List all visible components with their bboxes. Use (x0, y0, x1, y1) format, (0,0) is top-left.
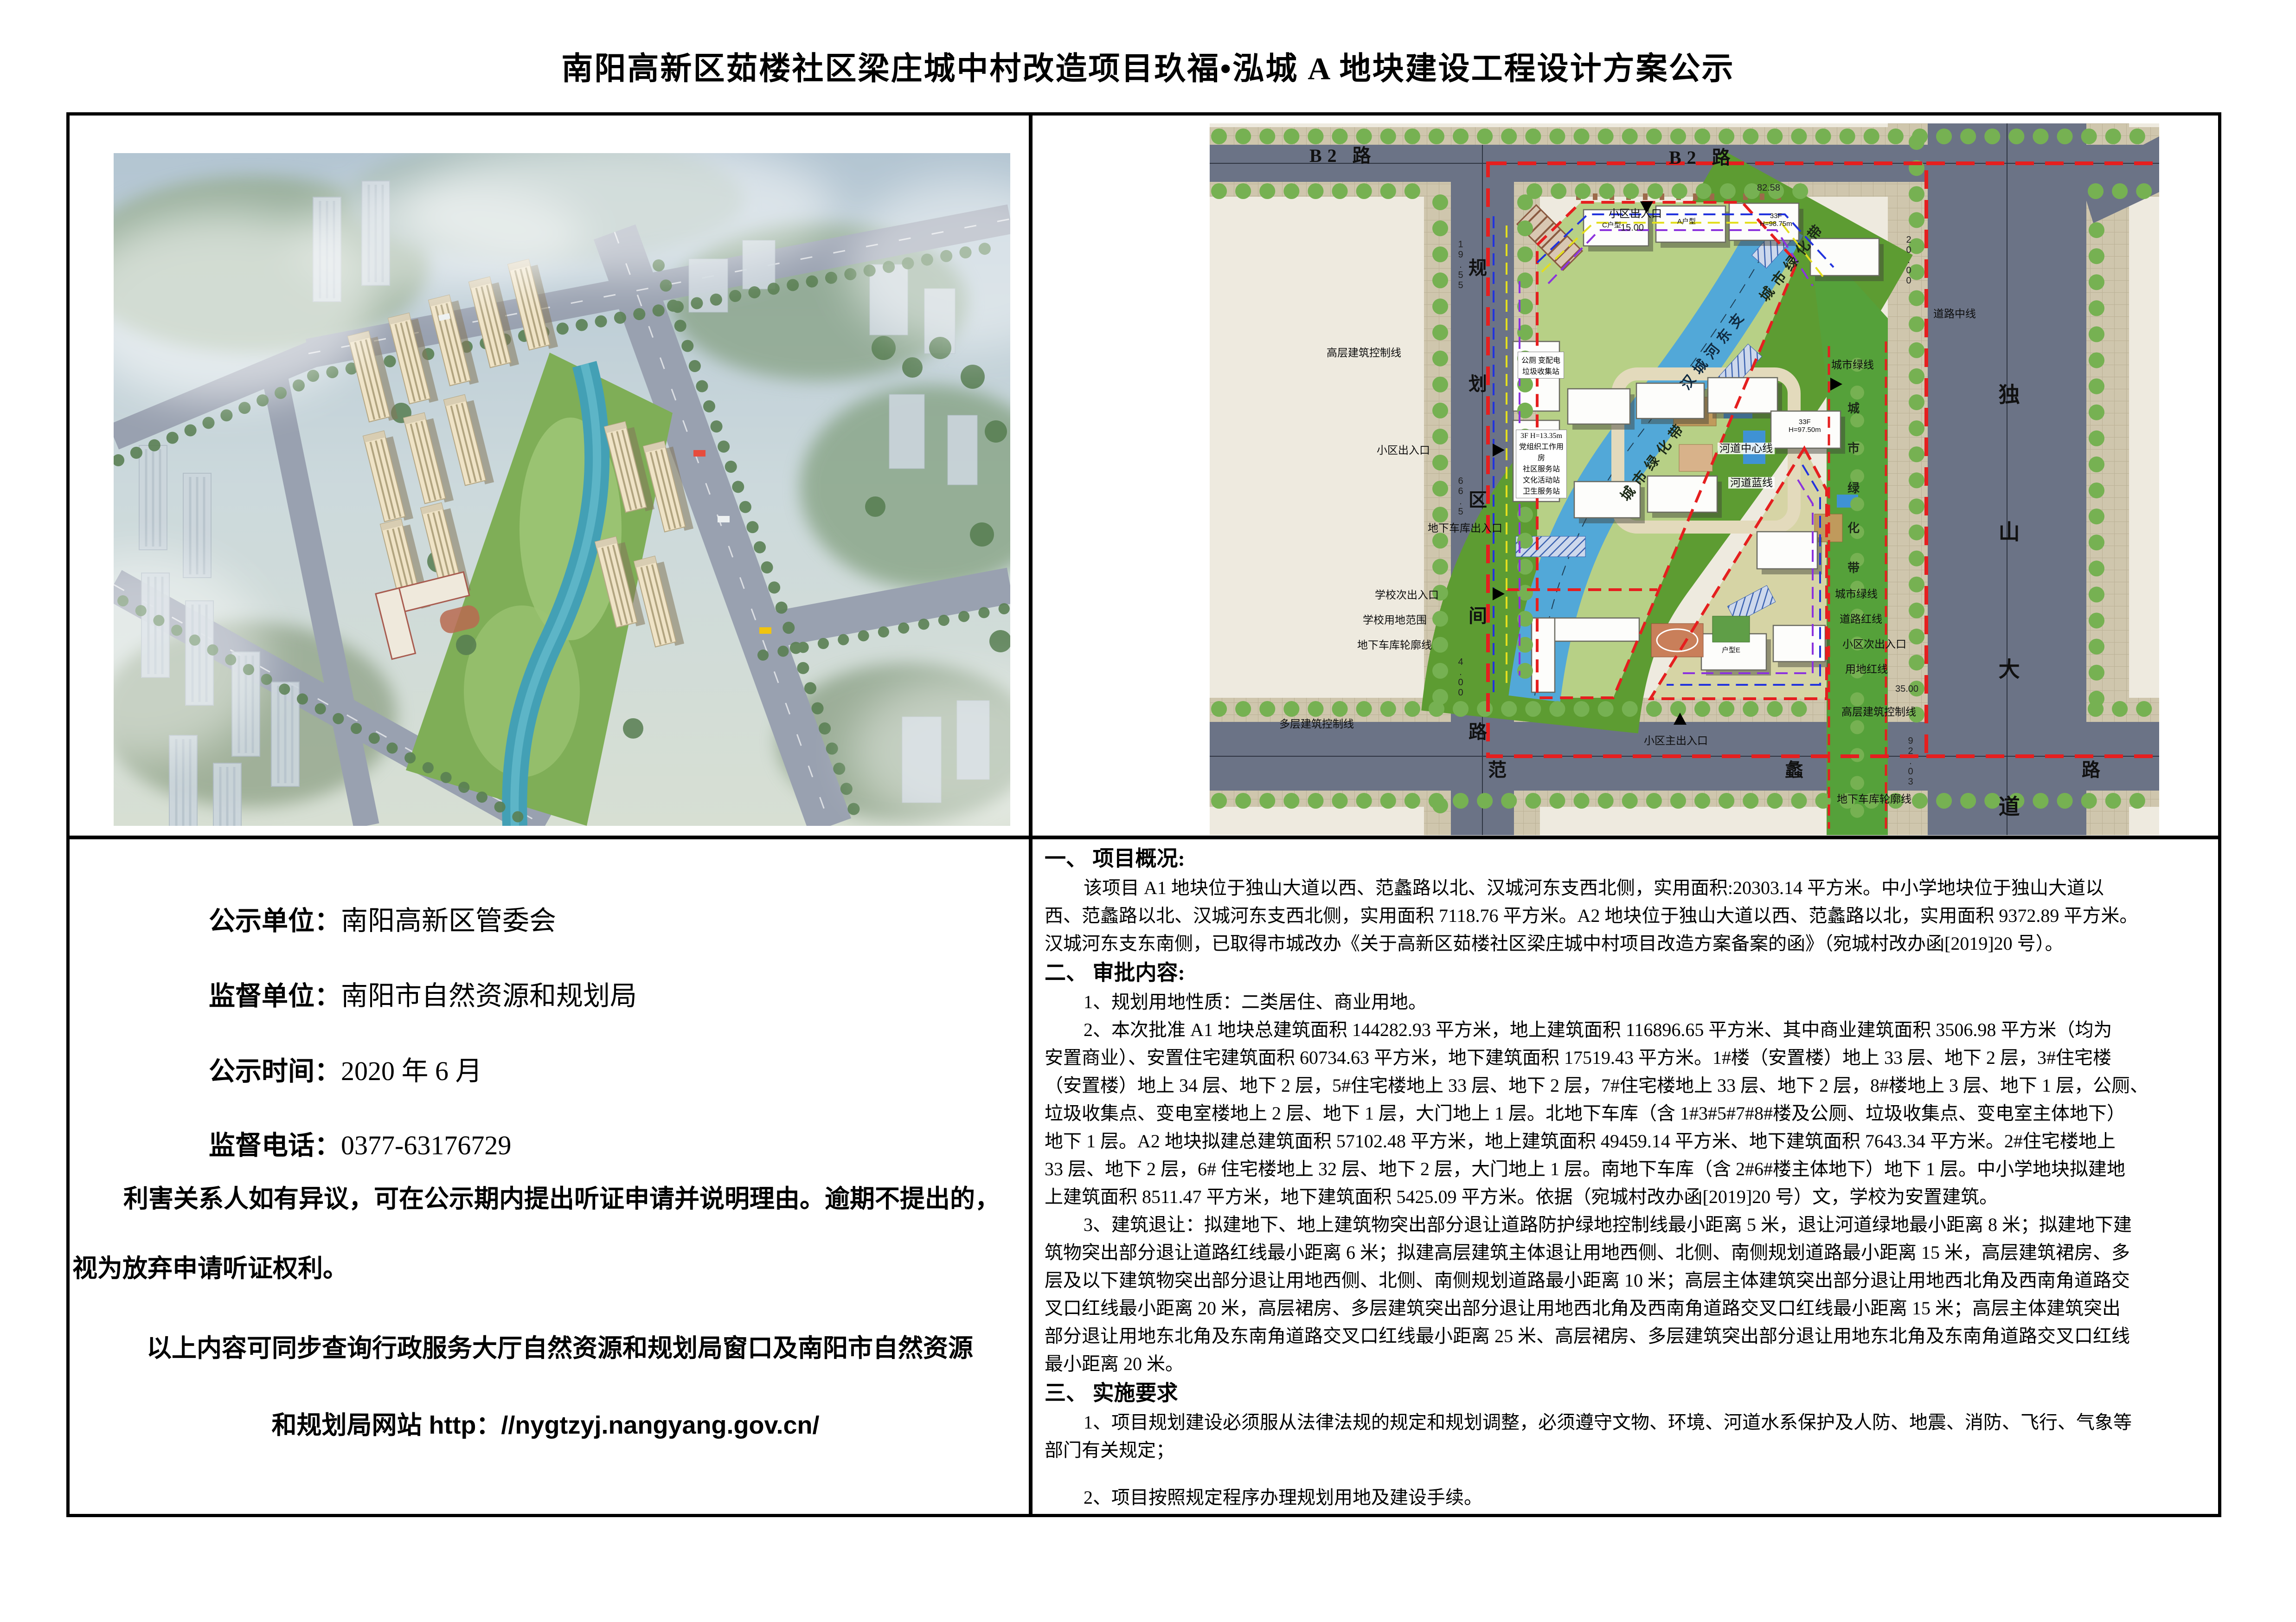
label-city-green-line-1: 城市绿线 (1831, 359, 1874, 371)
label-unit-e: 户型E (1722, 647, 1740, 655)
label-highrise-control-line-east: 高层建筑控制线 (1841, 706, 1916, 718)
text-line: 垃圾收集点、变电室楼地上 2 层、地下 1 层，大门地上 1 层。北地下车库（含… (1045, 1100, 2214, 1127)
site-plan: B2 路 B2 路 规划区间路 独山大道 范蠡路 城市绿化带 汉城河东支 城市绿… (1210, 123, 2159, 835)
label-highrise-control-line-west: 高层建筑控制线 (1327, 347, 1401, 359)
text-line: 筑物突出部分退让道路红线最小距离 6 米；拟建高层建筑主体退让用地西侧、北侧、南… (1045, 1239, 2214, 1267)
notice-phone-value: 0377-63176729 (341, 1130, 511, 1160)
label-river-centerline: 河道中心线 (1718, 443, 1775, 454)
notice-unit-label: 公示单位： (209, 906, 341, 936)
label-unit-a: A户型 (1677, 218, 1696, 226)
table-vertical-divider (1029, 112, 1033, 1517)
label-entry-main: 小区主出入口 (1644, 735, 1708, 747)
text-line: 该项目 A1 地块位于独山大道以西、范蠡路以北、汉城河东支西北侧，实用面积:20… (1045, 874, 2214, 902)
dim-8258: 82.58 (1757, 183, 1780, 193)
notice-query-paragraph: 以上内容可同步查询行政服务大厅自然资源和规划局窗口及南阳市自然资源 (72, 1313, 1019, 1383)
section-heading-1: 一、 项目概况: (1045, 843, 2214, 874)
label-33f-9875: 33F H=98.75m (1760, 212, 1792, 228)
page-title: 南阳高新区茹楼社区梁庄城中村改造项目玖福•泓城 A 地块建设工程设计方案公示 (0, 43, 2296, 89)
label-garage-outline-east: 地下车库轮廓线 (1837, 793, 1911, 805)
notice-row-unit: 公示单位：南阳高新区管委会 (209, 899, 556, 938)
notice-page: 南阳高新区茹楼社区梁庄城中村改造项目玖福•泓城 A 地块建设工程设计方案公示 (0, 0, 2296, 1622)
notice-time-value: 2020 年 6 月 (341, 1056, 482, 1086)
label-unit-c: C户型 (1602, 222, 1621, 230)
notice-supervisor-value: 南阳市自然资源和规划局 (341, 981, 637, 1011)
road-label-fanli-road: 范蠡路 (1488, 760, 2296, 780)
label-utilities-box: 公厕 变配电 垃圾收集站 (1518, 352, 1564, 379)
label-site-red-line: 用地红线 (1845, 663, 1888, 675)
notice-cell: 公示单位：南阳高新区管委会 监督单位：南阳市自然资源和规划局 公示时间：2020… (70, 839, 1029, 1514)
notice-objection-paragraph: 利害关系人如有异议，可在公示期内提出听证申请并说明理由。逾期不提出的，视为放弃申… (72, 1164, 1019, 1303)
text-line: 部门有关规定； (1045, 1436, 2214, 1464)
label-garage-entry: 地下车库出入口 (1428, 522, 1502, 534)
section-heading-2: 二、 审批内容: (1045, 958, 2214, 988)
text-line: 安置商业）、安置住宅建筑面积 60734.63 平方米，地下建筑面积 17519… (1045, 1044, 2214, 1072)
dim-1955: 19.55 (1456, 239, 1466, 290)
notice-phone-label: 监督电话： (209, 1131, 341, 1160)
aerial-rendering (114, 153, 1010, 826)
text-line: 33 层、地下 2 层，6# 住宅楼地上 32 层、地下 2 层，大门地上 1 … (1045, 1155, 2214, 1183)
overview-cell: 一、 项目概况: 该项目 A1 地块位于独山大道以西、范蠡路以北、汉城河东支西北… (1045, 843, 2214, 1512)
text-line: 汉城河东支东南侧，已取得市城改办《关于高新区茹楼社区梁庄城中村项目改造方案备案的… (1045, 930, 2214, 958)
road-label-dushan-avenue: 独山大道 (1995, 383, 2019, 933)
dim-400: 4.00 (1456, 657, 1466, 698)
dim-665: 66.5 (1456, 476, 1466, 517)
label-river-blue-line: 河道蓝线 (1728, 477, 1775, 489)
text-line: 叉口红线最小距离 20 米，高层裙房、多层建筑突出部分退让用地西北角及西南角道路… (1045, 1294, 2214, 1322)
text-line: 地下 1 层。A2 地块拟建总建筑面积 57102.48 平方米，地上建筑面积 … (1045, 1127, 2214, 1155)
dim-3500: 35.00 (1895, 684, 1918, 694)
dim-1500: 15.00 (1621, 223, 1644, 233)
text-line: 2、本次批准 A1 地块总建筑面积 144282.93 平方米，地上建筑面积 1… (1045, 1016, 2214, 1044)
text-line: 层及以下建筑物突出部分退让用地西侧、北侧、南侧规划道路最小距离 10 米；高层主… (1045, 1267, 2214, 1294)
text-line: 1、项目规划建设必须服从法律法规的规定和规划调整，必须遵守文物、环境、河道水系保… (1045, 1409, 2214, 1436)
notice-row-time: 公示时间：2020 年 6 月 (209, 1049, 482, 1088)
label-midrise-control-line: 多层建筑控制线 (1279, 718, 1354, 730)
text-line: （安置楼）地上 34 层、地下 2 层，5#住宅楼地上 33 层、地下 2 层，… (1045, 1072, 2214, 1100)
label-road-red-line: 道路红线 (1840, 613, 1882, 625)
notice-row-supervisor: 监督单位：南阳市自然资源和规划局 (209, 974, 637, 1013)
text-line: 上建筑面积 8511.47 平方米，地下建筑面积 5425.09 平方米。依据（… (1045, 1183, 2214, 1211)
label-community-services-box: 3F H=13.35m 党组织工作用房 社区服务站 文化活动站 卫生服务站 (1516, 430, 1567, 498)
label-school-entry: 学校次出入口 (1375, 589, 1439, 601)
text-line: 3、建筑退让：拟建地下、地上建筑物突出部分退让道路防护绿地控制线最小距离 5 米… (1045, 1211, 2214, 1239)
label-33f-9750: 33F H=97.50m (1789, 418, 1821, 434)
notice-supervisor-label: 监督单位： (209, 981, 341, 1011)
label-entry-west: 小区出入口 (1377, 444, 1430, 456)
text-line: 1、规划用地性质：二类居住、商业用地。 (1045, 988, 2214, 1016)
notice-unit-value: 南阳高新区管委会 (341, 906, 556, 936)
text-line: 部分退让用地东北角及东南角道路交叉口红线最小距离 25 米、高层裙房、多层建筑突… (1045, 1322, 2214, 1350)
label-garage-outline-west: 地下车库轮廓线 (1357, 639, 1432, 651)
text-line: 西、范蠡路以北、汉城河东支西北侧，实用面积 7118.76 平方米。A2 地块位… (1045, 902, 2214, 930)
dim-2000: 20.00 (1904, 235, 1914, 286)
dim-9203: 92.03 (1905, 736, 1916, 787)
road-label-planned-road: 规划区间路 (1466, 258, 1486, 838)
label-greenway-strip: 城市绿化带 (1846, 402, 1860, 601)
notice-website-line: 和规划局网站 http：//nygtzyj.nangyang.gov.cn/ (72, 1390, 1019, 1460)
text-line: 2、项目按照规定程序办理规划用地及建设手续。 (1045, 1484, 2214, 1512)
label-city-green-line-2: 城市绿线 (1835, 588, 1878, 600)
notice-time-label: 公示时间： (209, 1056, 341, 1086)
notice-row-phone: 监督电话：0377-63176729 (209, 1124, 511, 1162)
road-label-b2-west: B2 路 (1309, 146, 1377, 166)
label-secondary-entry: 小区次出入口 (1842, 638, 1906, 650)
section-heading-3: 三、 实施要求 (1045, 1378, 2214, 1409)
label-entry-north: 小区出入口 (1609, 208, 1662, 219)
label-school-area: 学校用地范围 (1363, 614, 1427, 626)
road-label-b2-east: B2 路 (1669, 148, 1736, 168)
text-line: 最小距离 20 米。 (1045, 1350, 2214, 1378)
label-road-centerline: 道路中线 (1933, 308, 1976, 320)
table-horizontal-divider (66, 836, 2221, 839)
